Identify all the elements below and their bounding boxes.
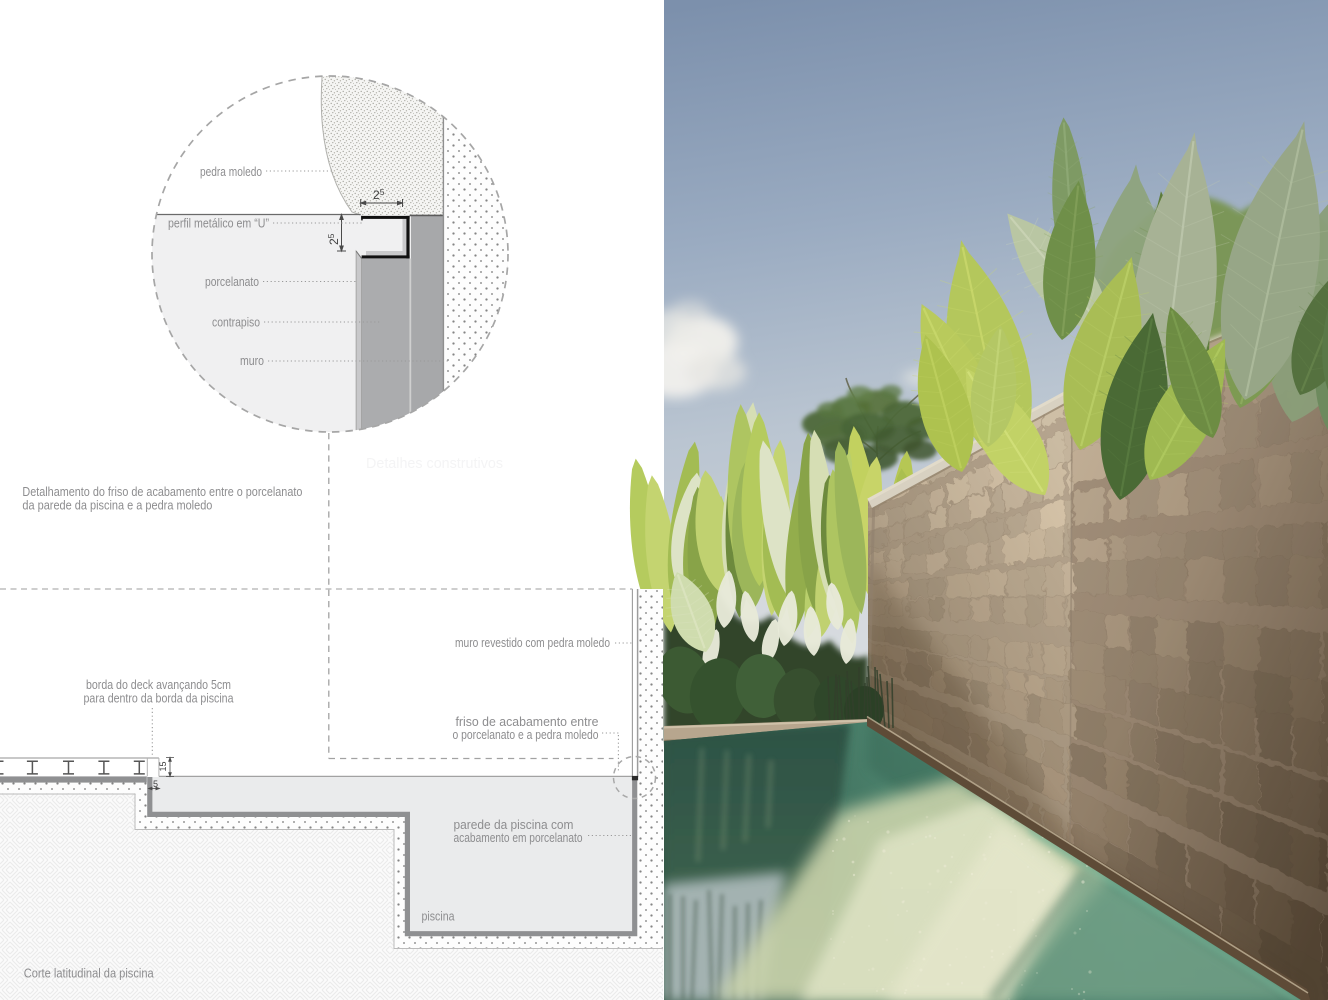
svg-text:para dentro da borda da piscin: para dentro da borda da piscina xyxy=(84,691,235,706)
svg-text:muro revestido com pedra moled: muro revestido com pedra moledo xyxy=(455,635,610,650)
svg-text:o porcelanato e a pedra moledo: o porcelanato e a pedra moledo xyxy=(453,727,599,742)
svg-text:piscina: piscina xyxy=(422,909,456,924)
svg-text:perfil metálico em “U”: perfil metálico em “U” xyxy=(168,216,269,231)
svg-text:acabamento em porcelanato: acabamento em porcelanato xyxy=(454,830,583,845)
svg-text:15: 15 xyxy=(158,761,168,771)
svg-text:contrapiso: contrapiso xyxy=(212,315,260,330)
svg-text:Corte latitudinal da piscina: Corte latitudinal da piscina xyxy=(24,966,155,981)
svg-text:porcelanato: porcelanato xyxy=(205,274,259,289)
svg-text:muro: muro xyxy=(240,353,264,368)
svg-text:da parede da piscina e a pedra: da parede da piscina e a pedra moledo xyxy=(22,498,212,513)
svg-text:pedra moledo: pedra moledo xyxy=(200,164,262,179)
svg-text:Detalhes construtivos: Detalhes construtivos xyxy=(366,455,503,472)
svg-text:5: 5 xyxy=(153,779,158,789)
